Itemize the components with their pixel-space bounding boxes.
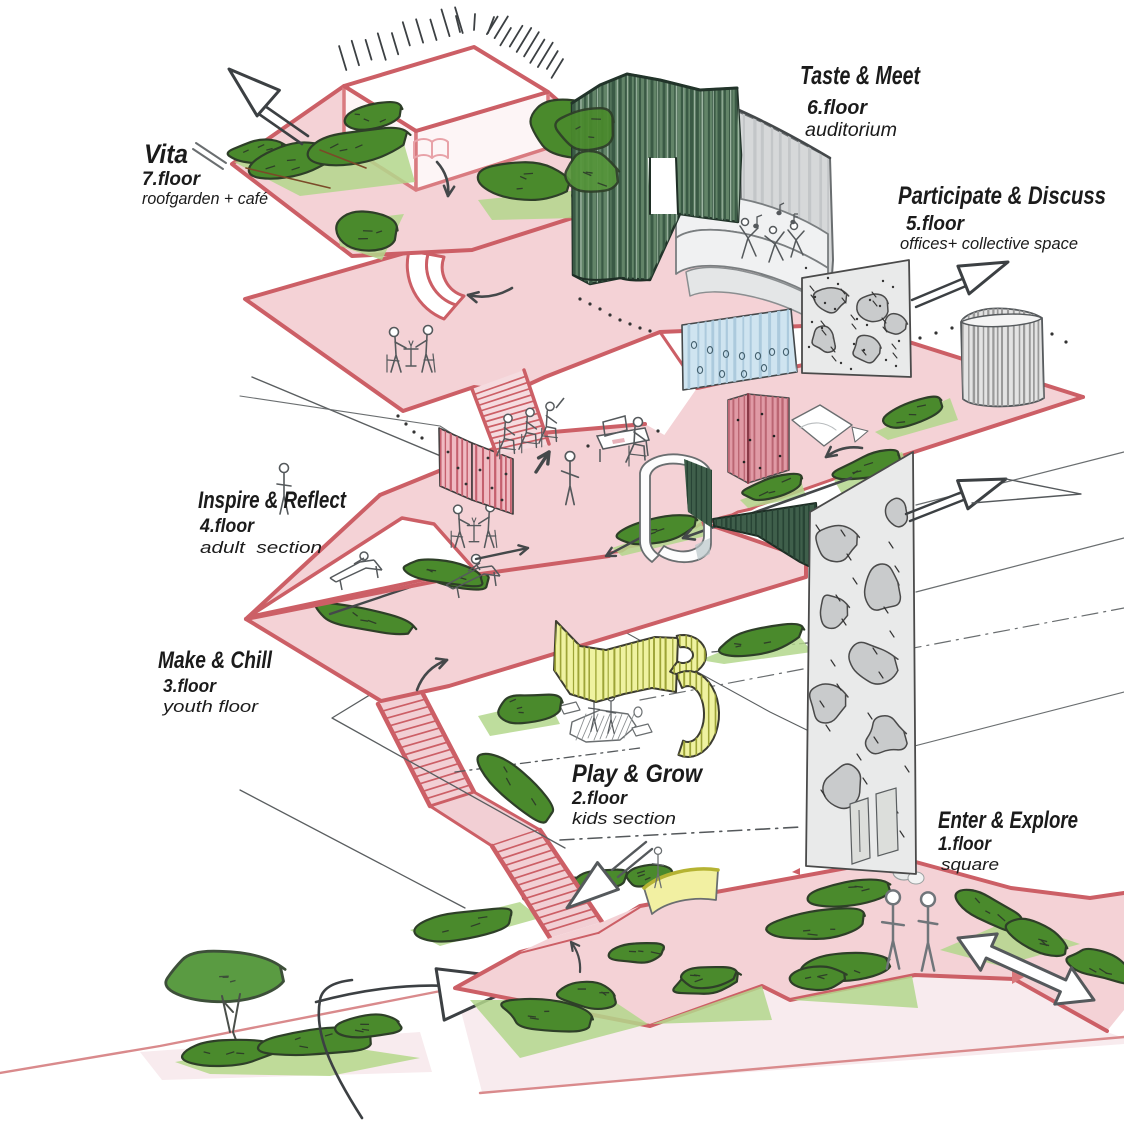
svg-text:offices+ collective space: offices+ collective space xyxy=(900,234,1078,253)
svg-text:Vita: Vita xyxy=(144,139,188,169)
svg-text:Play & Grow: Play & Grow xyxy=(572,760,703,788)
svg-text:Make & Chill: Make & Chill xyxy=(158,647,273,674)
svg-text:3.floor: 3.floor xyxy=(163,676,217,696)
svg-text:kids section: kids section xyxy=(572,809,676,828)
svg-text:Enter & Explore: Enter & Explore xyxy=(938,807,1078,834)
svg-text:youth floor: youth floor xyxy=(162,697,260,716)
svg-text:square: square xyxy=(941,855,999,874)
svg-text:4.floor: 4.floor xyxy=(199,516,255,537)
svg-text:1.floor: 1.floor xyxy=(938,834,992,855)
svg-text:Participate & Discuss: Participate & Discuss xyxy=(898,182,1106,210)
svg-text:6.floor: 6.floor xyxy=(807,97,868,119)
svg-text:roofgarden + café: roofgarden + café xyxy=(142,189,268,208)
svg-text:adult section: adult section xyxy=(200,538,322,557)
svg-text:auditorium: auditorium xyxy=(805,120,897,141)
svg-text:2.floor: 2.floor xyxy=(571,788,628,808)
svg-text:Inspire & Reflect: Inspire & Reflect xyxy=(198,487,347,514)
svg-text:Taste & Meet: Taste & Meet xyxy=(800,60,921,90)
svg-text:7.floor: 7.floor xyxy=(142,169,202,190)
svg-text:5.floor: 5.floor xyxy=(906,213,965,235)
